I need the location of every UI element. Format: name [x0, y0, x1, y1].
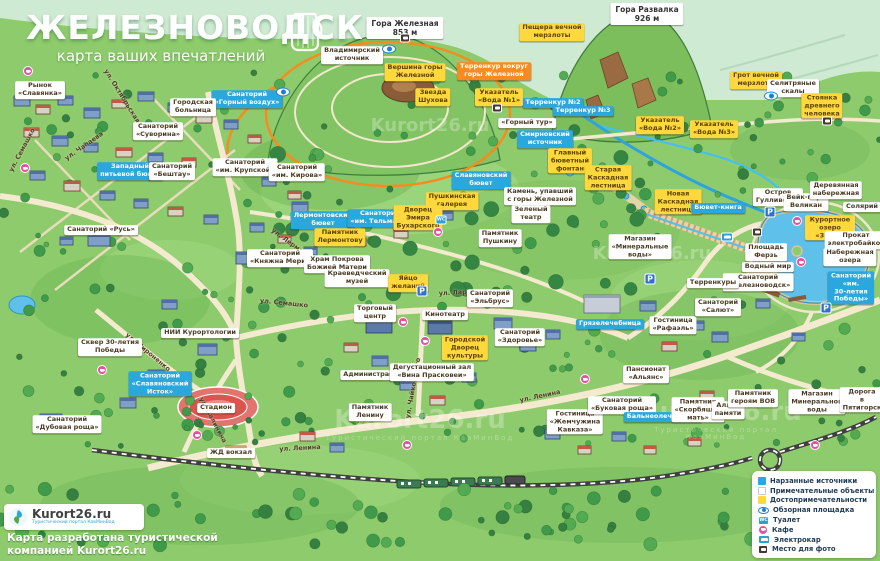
map-label: Кинотеатр [422, 310, 468, 320]
map-label: «Горный тур» [498, 118, 556, 128]
map-label: Гора Развалка 926 м [610, 3, 683, 25]
cafe-icon [796, 257, 806, 267]
legend-label: Место для фото [772, 545, 836, 553]
cafe-icon [23, 66, 33, 76]
street-label: ул. Ленина [519, 388, 561, 404]
map-label: Санаторий «Славяновский Исток» [129, 371, 192, 396]
map-label: Пансионат «Альянс» [623, 365, 669, 383]
sight-icon [758, 496, 766, 504]
map-label: Санаторий «Дубовая роща» [32, 415, 101, 433]
map-label: Санаторий «Здоровье» [495, 328, 545, 346]
obj-icon [758, 487, 766, 495]
map-label: Терренкур вокруг горы Железной [457, 62, 531, 80]
cafe-icon [420, 336, 430, 346]
map-credit: Карта разработана туристической компание… [7, 532, 218, 558]
cafe-icon [433, 227, 443, 237]
map-label: Грязелечебница [576, 319, 644, 329]
map-label: Памятник Пушкину [479, 229, 522, 247]
legend-item: Кафе [758, 525, 872, 535]
map-label: Набережная озера [823, 248, 876, 266]
map-label: Вершина горы Железной [384, 63, 445, 81]
legend-label: Электрокар [774, 536, 821, 544]
street-label: ул. Октябрьская [102, 68, 141, 125]
legend-label: Достопримечательности [770, 496, 867, 504]
legend-item: Место для фото [758, 545, 872, 555]
map-label: Памятник Ленину [349, 403, 392, 421]
labels-layer: Гора Железная 853 мГора Развалка 926 мВл… [0, 0, 880, 561]
legend-label: Нарзанные источники [770, 477, 857, 485]
map-label: Рынок «Славянка» [15, 81, 65, 99]
map-label: Лермонтовский бювет [291, 211, 355, 229]
cafe-icon [398, 317, 408, 327]
photo-icon [758, 545, 768, 554]
watermark: Kurort26.ru [371, 116, 490, 136]
legend-item: Обзорная площадка [758, 505, 872, 515]
map-label: Санаторий «Суворина» [133, 122, 183, 140]
parking-icon: P [765, 207, 776, 218]
map-label: Бювет-книга [691, 203, 745, 213]
map-label: Указатель «Вода №2» [636, 116, 684, 134]
eye-icon [758, 507, 769, 514]
cafe-icon [20, 163, 30, 173]
map-label: Памятник героям ВОВ [728, 389, 778, 407]
street-label: ул. Семашко [260, 296, 309, 309]
map-label: Прокат электробайков [825, 231, 880, 249]
map-label: Терренкур №3 [553, 106, 614, 116]
map-label: Смирновский источник [517, 130, 573, 148]
legend-item: Электрокар [758, 535, 872, 545]
legend-label: Туалет [773, 516, 800, 524]
photo-icon [822, 117, 832, 126]
cafe-icon [580, 374, 590, 384]
cafe-icon [758, 525, 768, 535]
wc-icon: WC [436, 216, 447, 225]
legend-item: Нарзанные источники [758, 476, 872, 486]
legend-item: Достопримечательности [758, 496, 872, 506]
map-label: Торговый центр [354, 304, 396, 322]
wc-icon: WC [758, 516, 769, 525]
map-label: Солярий [843, 202, 880, 212]
map-label: Гостиница «Рафаэль» [649, 316, 696, 334]
page-subtitle: карта ваших впечатлений [26, 47, 296, 65]
map-label: Звезда Шухова [415, 88, 450, 106]
photo-icon [400, 34, 410, 43]
map-label: ЖД вокзал [207, 448, 255, 458]
map-label: Санаторий «им. Кирова» [269, 163, 325, 181]
map-label: Магазин «Минеральные воды» [609, 234, 672, 259]
map-label: Дорога в Пятигорск [840, 387, 880, 412]
photo-icon [492, 104, 502, 113]
map-label: Камень, упавший с горы Железной [504, 187, 576, 205]
map-label: Санаторий «им. Крупской» [213, 158, 278, 176]
map-label: Санаторий «им. 30-летия Победы» [828, 271, 874, 304]
parking-icon: P [821, 303, 832, 314]
map-label: Старая Каскадная лестница [585, 165, 632, 190]
legend-item: Примечательные объекты [758, 486, 872, 496]
parking-icon: P [417, 286, 428, 297]
map-label: Дегустационный зал «Вина Прасковеи» [390, 363, 474, 381]
map-label: Пещера вечной мерзлоты [519, 23, 584, 41]
map-label: НИИ Курортологии [161, 328, 239, 338]
map-label: Указатель «Вода №3» [690, 120, 738, 138]
map-label: Водный мир [742, 262, 794, 272]
legend-label: Примечательные объекты [770, 487, 874, 495]
map-legend: Нарзанные источникиПримечательные объект… [752, 471, 876, 558]
eye-icon [382, 45, 396, 54]
cafe-icon [192, 430, 202, 440]
map-label: Санаторий «Салют» [695, 298, 741, 316]
legend-item: WCТуалет [758, 515, 872, 525]
map-label: Площадь Ферзь [745, 243, 787, 261]
map-label: Стоянка древнего человека [801, 93, 842, 118]
photo-icon [752, 228, 762, 237]
src-icon [758, 477, 766, 485]
street-label: ул. Ленина [279, 443, 321, 453]
map-label: Санаторий «Эльбрус» [467, 289, 513, 307]
spa-jug-icon [283, 6, 329, 56]
electro-icon [721, 233, 733, 242]
legend-label: Обзорная площадка [773, 506, 854, 514]
map-label: Санаторий «Горный воздух» [212, 90, 283, 108]
electro-icon [758, 535, 770, 544]
tourist-map: Гора Железная 853 мГора Развалка 926 мВл… [0, 0, 880, 561]
kurort26-logo-text: Kurort26.ru [32, 508, 115, 520]
cafe-icon [810, 440, 820, 450]
map-label: Санаторий «Бештау» [149, 162, 195, 180]
map-label: Сквер 30-летия Победы [78, 338, 142, 356]
map-label: Стадион [197, 403, 235, 413]
map-label: Городской Дворец культуры [442, 335, 488, 360]
legend-label: Кафе [772, 526, 794, 534]
parking-icon: P [645, 274, 656, 285]
map-label: Санаторий «Русь» [64, 225, 138, 235]
map-label: Терренкуры [687, 278, 739, 288]
kurort26-logo-icon [8, 507, 28, 527]
map-label: Памятник Лермонтову [314, 228, 365, 246]
cafe-icon [402, 440, 412, 450]
map-label: Краеведческий музей [325, 269, 390, 287]
cafe-icon [97, 365, 107, 375]
map-label: Городская больница [170, 98, 216, 116]
street-label: ул. Чапаева [63, 130, 105, 162]
map-label: Зеленый театр [511, 205, 550, 223]
kurort26-logo-tagline: Туристический портал КавМинВод [32, 520, 115, 526]
attribution-card: Kurort26.ru Туристический портал КавМинВ… [4, 504, 144, 530]
eye-icon [276, 88, 290, 97]
map-label: Деревянная набережная [810, 181, 862, 199]
map-label: Магазин Минеральной воды [788, 389, 845, 414]
map-label: Славяновский бювет [452, 171, 511, 189]
cafe-icon [792, 216, 802, 226]
eye-icon [764, 92, 778, 101]
